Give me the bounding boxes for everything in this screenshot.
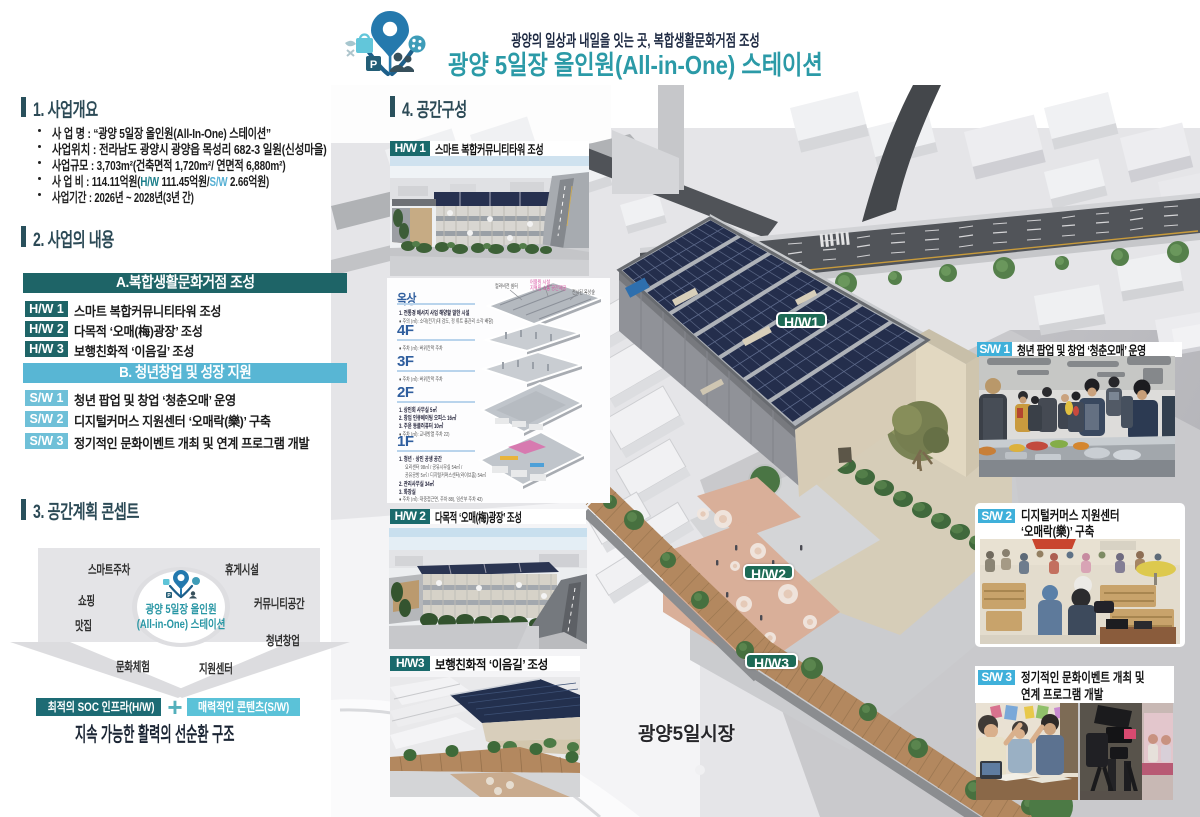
- svg-text:P: P: [370, 59, 377, 71]
